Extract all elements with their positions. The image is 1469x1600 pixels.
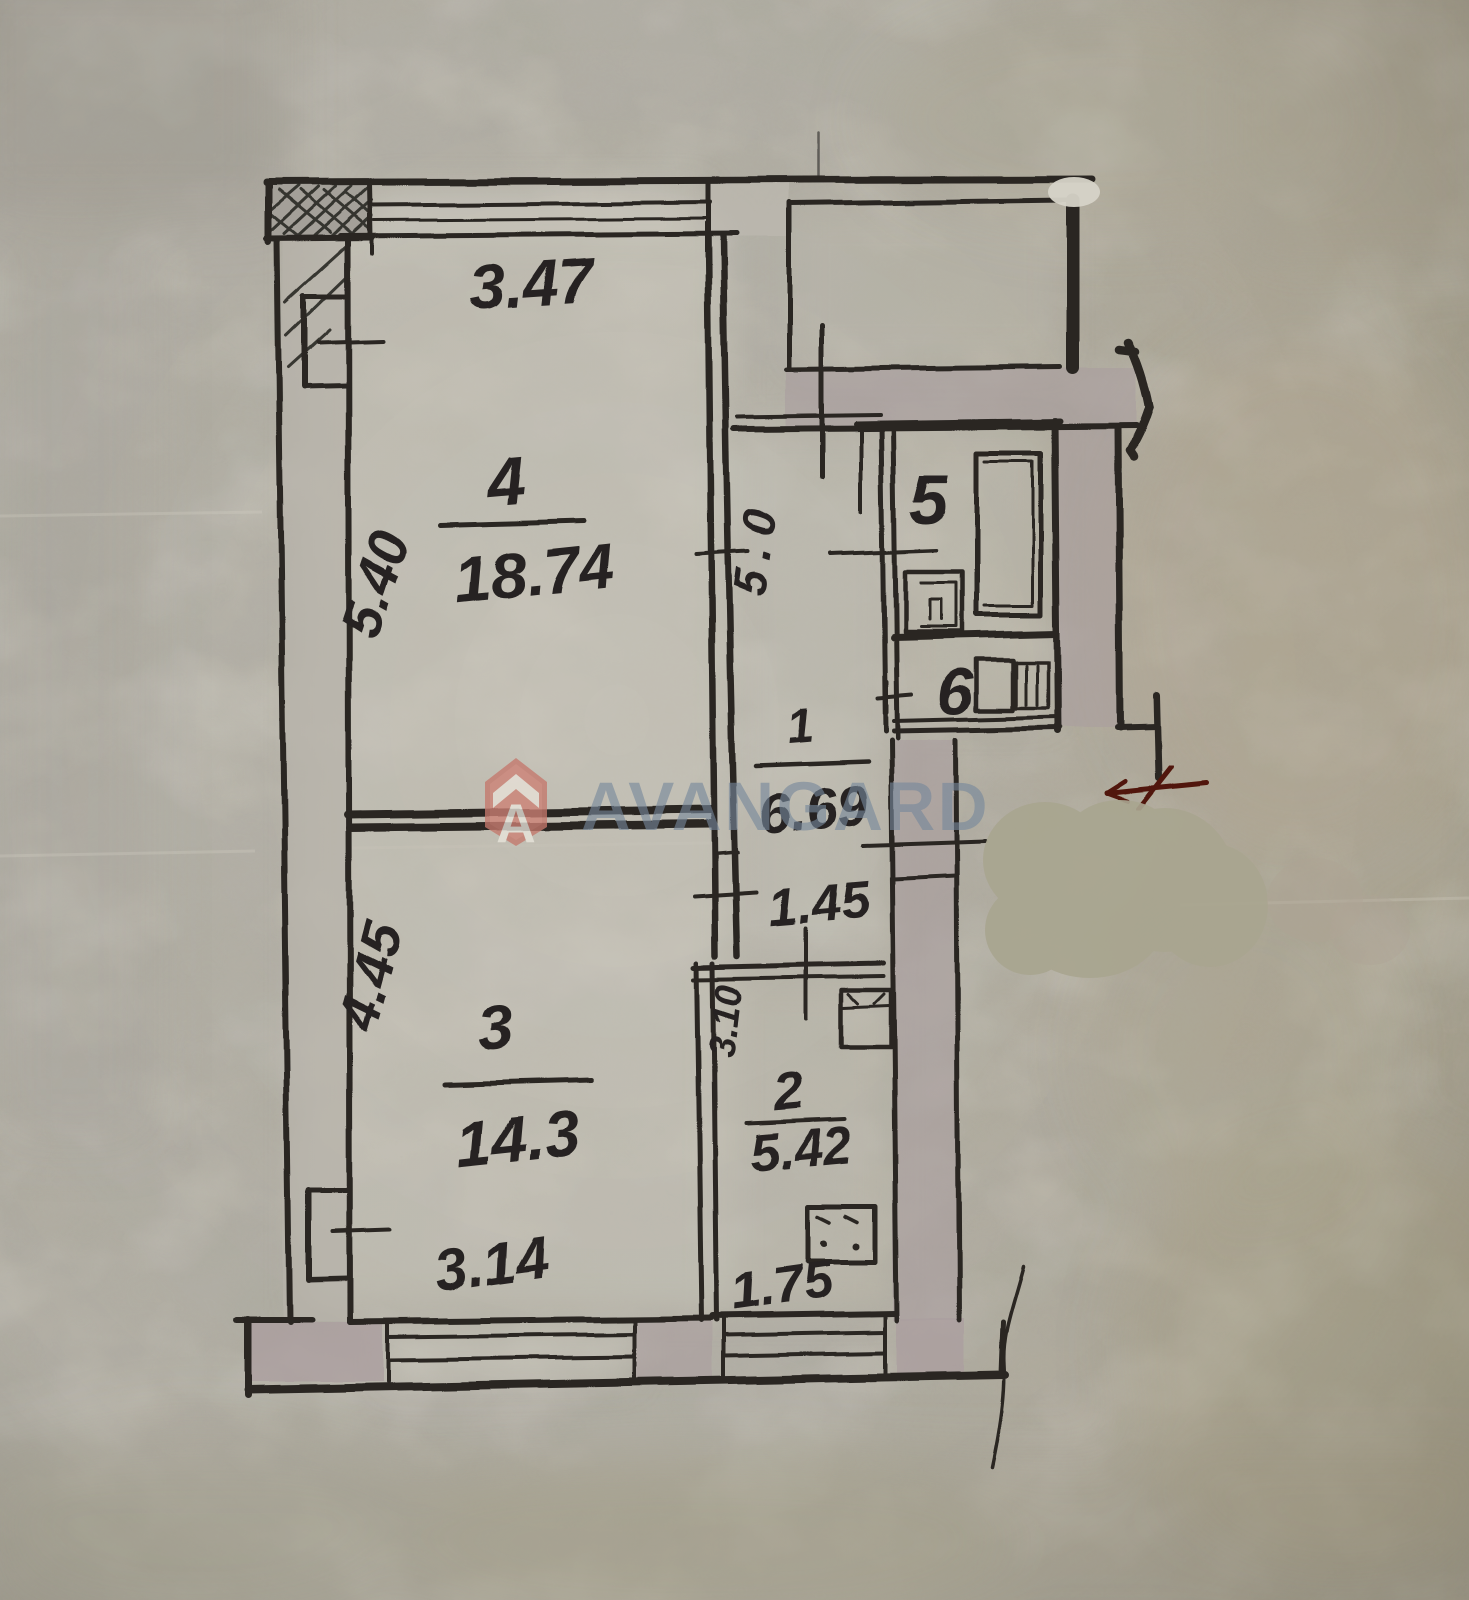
- svg-text:1: 1: [785, 699, 816, 754]
- svg-text:AVANGARD: AVANGARD: [581, 768, 990, 845]
- svg-text:3.10: 3.10: [701, 982, 751, 1059]
- svg-text:1.45: 1.45: [767, 871, 874, 938]
- svg-text:3.47: 3.47: [467, 244, 600, 325]
- svg-text:4: 4: [482, 443, 528, 522]
- svg-text:5.42: 5.42: [748, 1117, 854, 1184]
- svg-text:3: 3: [476, 993, 516, 1065]
- svg-text:5: 5: [909, 462, 948, 538]
- svg-text:A: A: [496, 792, 536, 854]
- svg-text:6: 6: [938, 656, 974, 728]
- svg-text:14.3: 14.3: [451, 1097, 582, 1182]
- svg-text:2: 2: [770, 1061, 806, 1123]
